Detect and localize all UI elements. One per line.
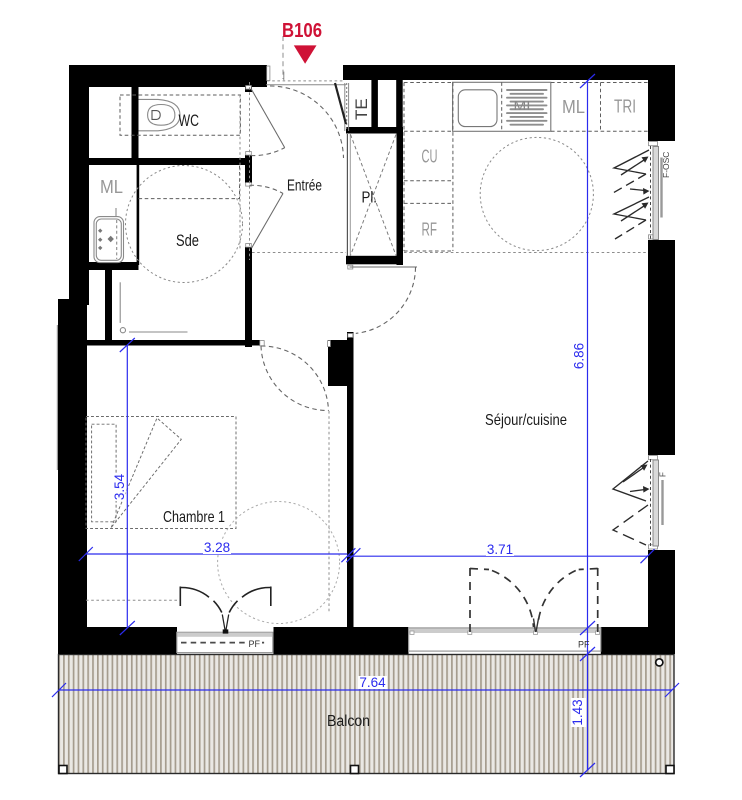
- svg-text:CU: CU: [422, 147, 438, 167]
- svg-text:Pl.: Pl.: [362, 190, 378, 207]
- svg-text:ML: ML: [100, 177, 123, 197]
- svg-text:ML: ML: [562, 97, 585, 117]
- svg-text:3.71: 3.71: [487, 542, 513, 557]
- svg-text:RF: RF: [422, 220, 438, 240]
- svg-text:MI: MI: [514, 98, 531, 113]
- svg-text:F-OSC: F-OSC: [661, 152, 671, 178]
- svg-text:Sde: Sde: [176, 232, 199, 250]
- svg-text:3.54: 3.54: [112, 473, 127, 500]
- svg-text:6.86: 6.86: [572, 343, 587, 369]
- svg-text:Séjour/cuisine: Séjour/cuisine: [485, 412, 567, 429]
- svg-text:TRI: TRI: [614, 97, 636, 117]
- svg-text:Chambre 1: Chambre 1: [163, 509, 225, 526]
- svg-text:Balcon: Balcon: [327, 713, 370, 730]
- svg-text:F: F: [659, 472, 668, 477]
- svg-text:B106: B106: [282, 20, 322, 42]
- svg-text:7.64: 7.64: [359, 675, 386, 690]
- svg-text:Entrée: Entrée: [287, 178, 322, 195]
- svg-text:PF: PF: [578, 640, 590, 651]
- svg-text:1.43: 1.43: [570, 699, 585, 725]
- svg-text:3.28: 3.28: [204, 540, 230, 555]
- svg-text:WC: WC: [179, 112, 200, 130]
- svg-text:PF: PF: [249, 639, 261, 650]
- svg-text:TE: TE: [352, 98, 371, 120]
